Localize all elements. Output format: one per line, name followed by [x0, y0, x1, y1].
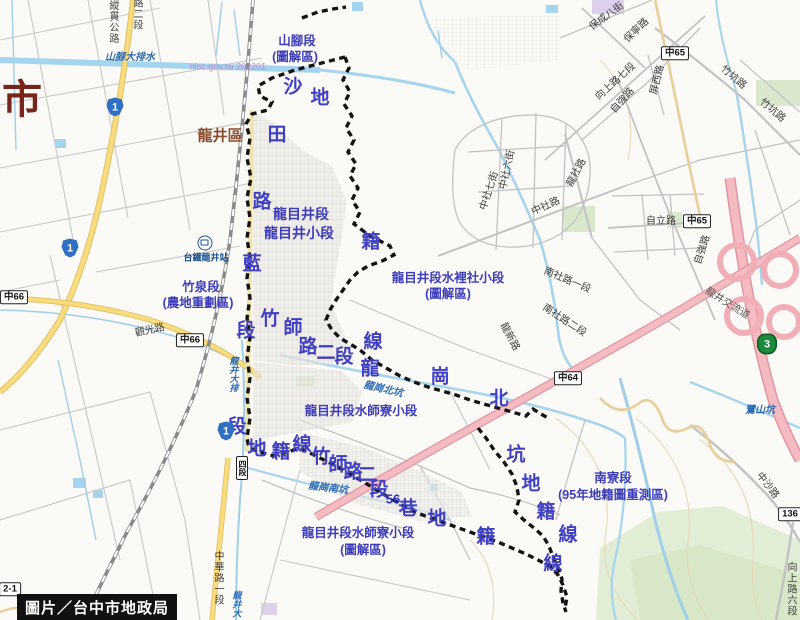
road-number-badge: 中66 [0, 290, 28, 304]
stream-longjing-drain: 龍井大排 [229, 356, 238, 392]
section-shuilishe: 龍目井段水裡社小段 [392, 272, 505, 285]
map-label: 藍 [242, 255, 261, 274]
map-label: 籍 [361, 233, 380, 252]
road-longshe: 龍社路 [566, 157, 589, 188]
road-zhongsha: 中沙路 [754, 471, 780, 501]
national-highway-shield: 3 [757, 334, 777, 355]
road-baocheng: 保成八街 [588, 1, 626, 33]
map-label: 段 [334, 348, 353, 367]
district-label: 龍井區 [197, 129, 242, 144]
road-zhonghua: 中華路一段 [212, 551, 222, 606]
road-xiangshang6: 向上路六段 [785, 562, 795, 617]
section-shanjiao: 山腳段 [278, 35, 316, 48]
stream-shanjiao-drain: 山腳大排水 [105, 53, 155, 63]
map-label: 線 [363, 333, 382, 352]
station-longjing: 台鐵龍井站 [183, 254, 228, 263]
road-baoning: 保寧路 [623, 17, 652, 45]
section-nanliao: 南寮段 [594, 472, 632, 485]
road-nanshe1: 南社路一段 [542, 267, 592, 296]
map-label: 地 [427, 510, 446, 529]
provincial-highway-shield: 1 [62, 239, 79, 258]
road-number-badge: 中66 [176, 333, 204, 347]
section-shanjiao-note: (圖解區) [272, 51, 318, 64]
road-zhukeng2: 竹坑路 [757, 98, 786, 125]
road-top-partial: 路二段 [131, 0, 141, 31]
label-longjing-interchange: 龍井交流道 [703, 287, 751, 322]
map-label: 段 [236, 322, 255, 341]
map-label: 田 [267, 126, 286, 145]
credit-text: 圖片／台中市地政局 [25, 600, 169, 617]
map-canvas: 市龍井區山腳段(圖解區)龍目井段龍目井小段竹泉段(農地重劃區)龍目井段水裡社小段… [0, 0, 800, 620]
map-label: 地 [310, 89, 329, 108]
road-zili: 自立路 [646, 217, 676, 227]
map-label: 二 [316, 344, 335, 363]
road-number-badge: 中65 [661, 46, 689, 60]
section-longmujing-sub: 龍目井小段 [264, 226, 334, 240]
road-number-badge: 中65 [683, 214, 711, 228]
map-label: 北 [489, 390, 508, 409]
stream-longgang-south: 龍崗南坑 [308, 482, 349, 497]
map-label: 崗 [430, 368, 449, 387]
road-number-badge: 四段 [236, 456, 248, 480]
road-number-badge: 136 [778, 507, 800, 521]
section-nanliao-note: (95年地籍圖重測區) [558, 489, 668, 502]
map-label: 坑 [506, 446, 525, 465]
map-label: 籍 [271, 443, 290, 462]
section-shuishiliao: 龍目井段水師寮小段 [305, 405, 418, 418]
map-label: 路 [252, 193, 271, 212]
road-zhongshe: 中社路 [530, 196, 561, 217]
map-label: 地 [247, 440, 266, 459]
section-longmujing: 龍目井段 [273, 207, 329, 221]
road-ziqiang2: 自強路 [694, 234, 713, 266]
provincial-highway-shield: 1 [218, 422, 235, 441]
map-label: 線 [558, 526, 577, 545]
section-shuishiliao2: 龍目井段水師寮小段 [302, 527, 415, 540]
train-station-icon [198, 236, 213, 251]
road-guanguang: 觀光路 [134, 323, 165, 339]
provincial-highway-shield: 1 [107, 98, 124, 117]
stream-longgang-north: 龍崗北坑 [362, 381, 403, 400]
road-longxin: 龍新路 [498, 321, 521, 352]
map-label: 龍 [360, 360, 379, 379]
road-zhongshe7: 中社七街 [479, 170, 501, 211]
map-label: 竹 [260, 310, 279, 329]
road-zhukeng1: 竹坑路 [718, 65, 747, 92]
map-label: 線 [543, 555, 562, 574]
map-label: 籍 [476, 528, 495, 547]
map-label: 路 [298, 338, 317, 357]
section-zhuquan: 竹泉段 [182, 281, 220, 294]
road-pingxi: 屏西路 [650, 64, 667, 96]
map-labels-layer: 市龍井區山腳段(圖解區)龍目井段龍目井小段竹泉段(農地重劃區)龍目井段水裡社小段… [0, 0, 800, 620]
section-shuishiliao2-note: (圖解區) [340, 544, 386, 557]
road-zhongshe6: 中社六街 [499, 149, 517, 190]
map-label: 師 [283, 319, 302, 338]
nlsc-watermark: nlsc.gov.tw 202201 [190, 63, 266, 72]
city-label-partial: 市 [2, 80, 42, 120]
road-zongguan: 縱貫公路 [107, 0, 117, 44]
stream-longjing-drain2: 龍井大 [232, 591, 241, 618]
section-zhuquan-note: (農地重劃區) [163, 297, 234, 310]
map-label: 地 [521, 475, 540, 494]
road-number-badge: 中64 [554, 371, 582, 385]
map-label: 沙 [283, 78, 302, 97]
map-label: 巷 [398, 500, 417, 519]
stream-lushan: 鷺山坑 [745, 406, 775, 416]
map-label: 線 [292, 436, 311, 455]
map-label: 籍 [536, 503, 555, 522]
road-nanshe2: 南社路二段 [540, 303, 587, 339]
credit-banner: 圖片／台中市地政局 [17, 594, 177, 620]
section-shuilishe-note: (圖解區) [425, 288, 471, 301]
